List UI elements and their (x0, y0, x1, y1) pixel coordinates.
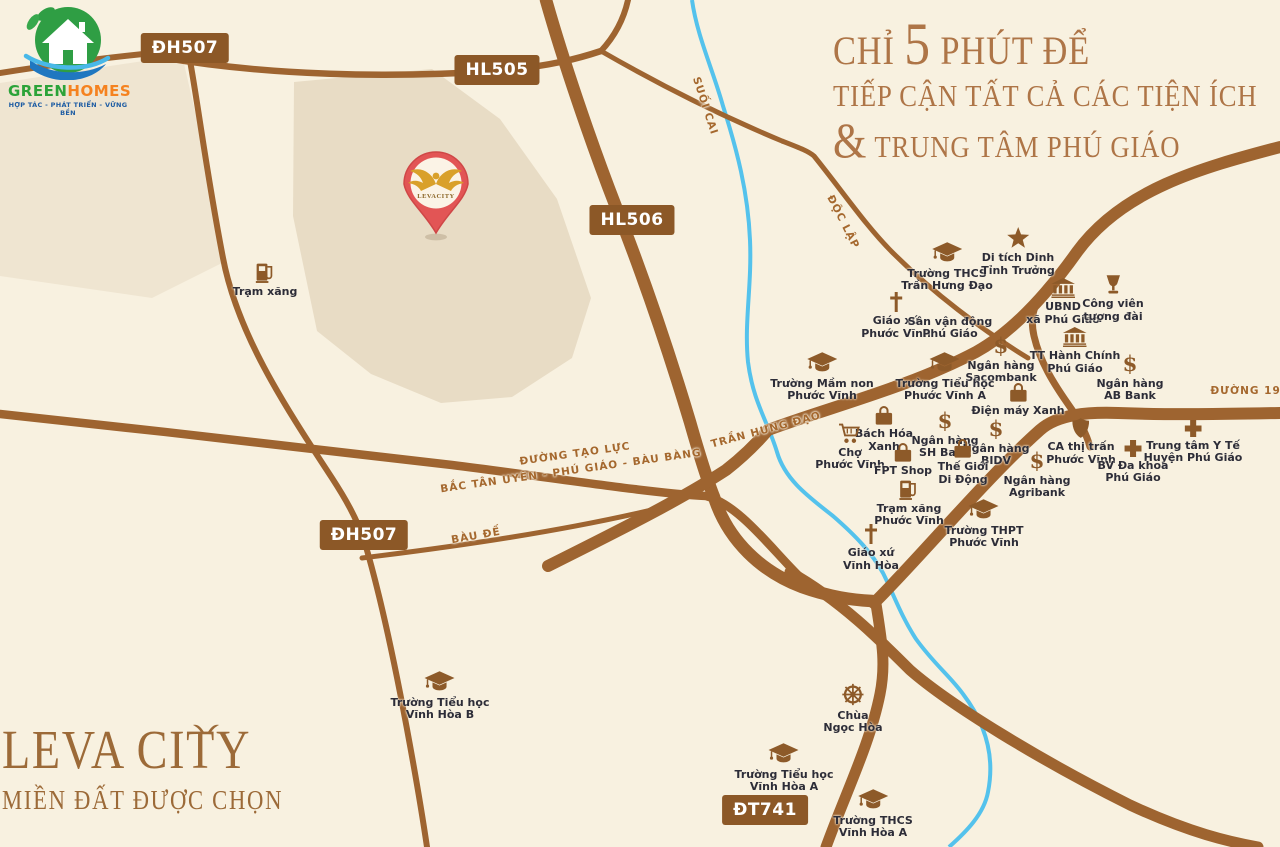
road-ref-label: HL505 (454, 55, 539, 85)
headline: CHỈ 5 PHÚT ĐỂ TIẾP CẬN TẤT CẢ CÁC TIỆN Í… (833, 20, 1257, 170)
brand-logo-emblem (16, 2, 120, 80)
title-wings-ornament (193, 722, 219, 736)
road-ref-label: HL506 (589, 205, 674, 235)
pin-label-text: LEVACITY (417, 193, 454, 200)
headline-line1: CHỈ 5 PHÚT ĐỂ (833, 20, 1257, 75)
road-duong19 (874, 413, 1280, 603)
road-ref-label: ĐT741 (722, 795, 808, 825)
brand-tagline: HỢP TÁC - PHÁT TRIỂN - VỮNG BỀN (8, 101, 128, 117)
road-ref-label: ĐH507 (141, 33, 229, 63)
map-canvas: $ (0, 0, 1280, 847)
headline-number: 5 (904, 11, 931, 77)
headline-line2: TIẾP CẬN TẤT CẢ CÁC TIỆN ÍCH (833, 75, 1257, 117)
project-name: LEVA CITY (2, 720, 283, 780)
headline-line3: & TRUNG TÂM PHÚ GIÁO (833, 117, 1257, 170)
road-hl506 (546, 0, 872, 601)
brand-logo: GREENHOMES HỢP TÁC - PHÁT TRIỂN - VỮNG B… (8, 2, 128, 117)
road-ref-label: ĐH507 (320, 520, 408, 550)
project-title-block: LEVA CITY MIỀN ĐẤT ĐƯỢC CHỌN (2, 720, 283, 816)
project-tagline: MIỀN ĐẤT ĐƯỢC CHỌN (2, 785, 283, 816)
road-southeast (790, 572, 1258, 847)
street-name-label: ĐƯỜNG 19 T (1210, 385, 1280, 397)
brand-name: GREENHOMES (8, 84, 128, 99)
road-hl505-north-spur (601, 0, 628, 51)
